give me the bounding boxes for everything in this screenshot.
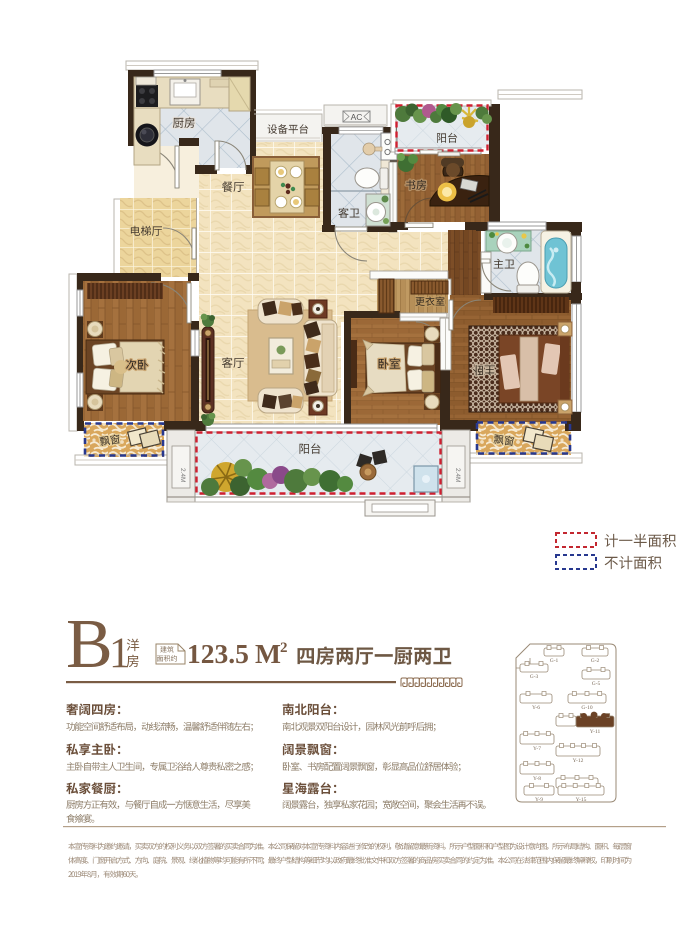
- svg-text:G-2: G-2: [591, 658, 600, 664]
- svg-text:Y-15: Y-15: [576, 797, 587, 803]
- svg-text:Y-6: Y-6: [532, 705, 540, 711]
- svg-text:Y-12: Y-12: [573, 758, 584, 764]
- svg-text:123.5: 123.5: [187, 638, 249, 669]
- svg-text:1: 1: [109, 630, 131, 677]
- svg-text:Y-11: Y-11: [590, 729, 601, 735]
- svg-text:G-10: G-10: [581, 705, 593, 711]
- svg-text:B: B: [66, 606, 113, 683]
- svg-text:2.4M: 2.4M: [179, 468, 186, 482]
- svg-text:Y-9: Y-9: [535, 797, 543, 803]
- svg-text:M: M: [255, 638, 281, 669]
- svg-text:G-3: G-3: [530, 674, 539, 680]
- svg-text:Y-7: Y-7: [533, 746, 541, 752]
- svg-text:AC: AC: [351, 112, 363, 122]
- svg-text:2.4M: 2.4M: [454, 468, 461, 482]
- svg-text:2: 2: [280, 640, 288, 656]
- svg-text:G-5: G-5: [592, 681, 601, 687]
- svg-text:G-1: G-1: [550, 658, 559, 664]
- svg-text:Y-8: Y-8: [533, 776, 541, 782]
